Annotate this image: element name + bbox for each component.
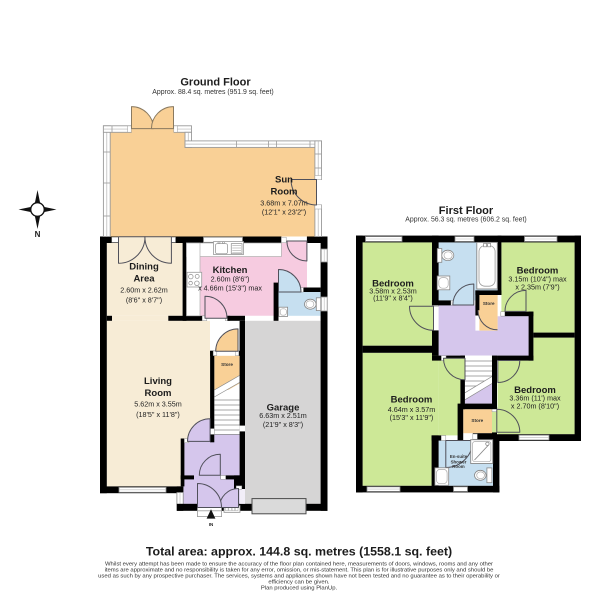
svg-text:x 2.70m (8'10"): x 2.70m (8'10") bbox=[511, 402, 559, 411]
svg-text:3.68m x 7.07m: 3.68m x 7.07m bbox=[260, 199, 308, 208]
svg-text:Store: Store bbox=[221, 362, 233, 367]
svg-text:x 4.66m (15'3") max: x 4.66m (15'3") max bbox=[198, 284, 262, 293]
svg-text:(8'6" x 8'7"): (8'6" x 8'7") bbox=[126, 296, 162, 305]
svg-text:2.60m (8'6"): 2.60m (8'6") bbox=[211, 275, 250, 284]
svg-text:5.62m x 3.55m: 5.62m x 3.55m bbox=[134, 400, 182, 409]
svg-text:Approx. 56.3 sq. metres (606.2: Approx. 56.3 sq. metres (606.2 sq. feet) bbox=[405, 216, 526, 223]
svg-text:En-suite: En-suite bbox=[450, 454, 468, 459]
svg-text:Living: Living bbox=[144, 376, 172, 387]
svg-text:Area: Area bbox=[133, 273, 155, 284]
svg-text:Dining: Dining bbox=[129, 261, 159, 272]
svg-text:Sun: Sun bbox=[275, 175, 293, 186]
svg-text:x 2.35m (7'9"): x 2.35m (7'9") bbox=[515, 283, 559, 292]
svg-text:(12'1" x 23'2"): (12'1" x 23'2") bbox=[262, 208, 306, 217]
svg-text:Store: Store bbox=[471, 418, 483, 423]
svg-text:Room: Room bbox=[145, 388, 172, 399]
svg-text:Room: Room bbox=[271, 187, 298, 198]
svg-text:Total area: approx. 144.8 sq.: Total area: approx. 144.8 sq. metres (15… bbox=[146, 545, 452, 559]
svg-text:Store: Store bbox=[483, 301, 495, 306]
svg-text:(21'9" x 8'3"): (21'9" x 8'3") bbox=[263, 420, 303, 429]
svg-text:(15'3" x 11'9"): (15'3" x 11'9") bbox=[390, 413, 434, 422]
svg-text:(11'9" x 8'4"): (11'9" x 8'4") bbox=[373, 294, 413, 303]
svg-text:2.60m x 2.62m: 2.60m x 2.62m bbox=[120, 286, 168, 295]
svg-text:Ground Floor: Ground Floor bbox=[180, 77, 251, 89]
svg-text:Approx. 88.4 sq. metres (951.9: Approx. 88.4 sq. metres (951.9 sq. feet) bbox=[152, 89, 273, 96]
svg-text:(18'5" x 11'8"): (18'5" x 11'8") bbox=[136, 410, 180, 419]
svg-text:Bedroom: Bedroom bbox=[391, 394, 433, 405]
svg-text:6.63m x 2.51m: 6.63m x 2.51m bbox=[259, 411, 307, 420]
svg-text:N: N bbox=[35, 230, 41, 239]
svg-text:Room: Room bbox=[452, 464, 465, 469]
svg-text:First Floor: First Floor bbox=[439, 205, 494, 217]
svg-text:IN: IN bbox=[209, 522, 214, 527]
svg-text:Plan produced using PlanUp.: Plan produced using PlanUp. bbox=[261, 585, 338, 591]
